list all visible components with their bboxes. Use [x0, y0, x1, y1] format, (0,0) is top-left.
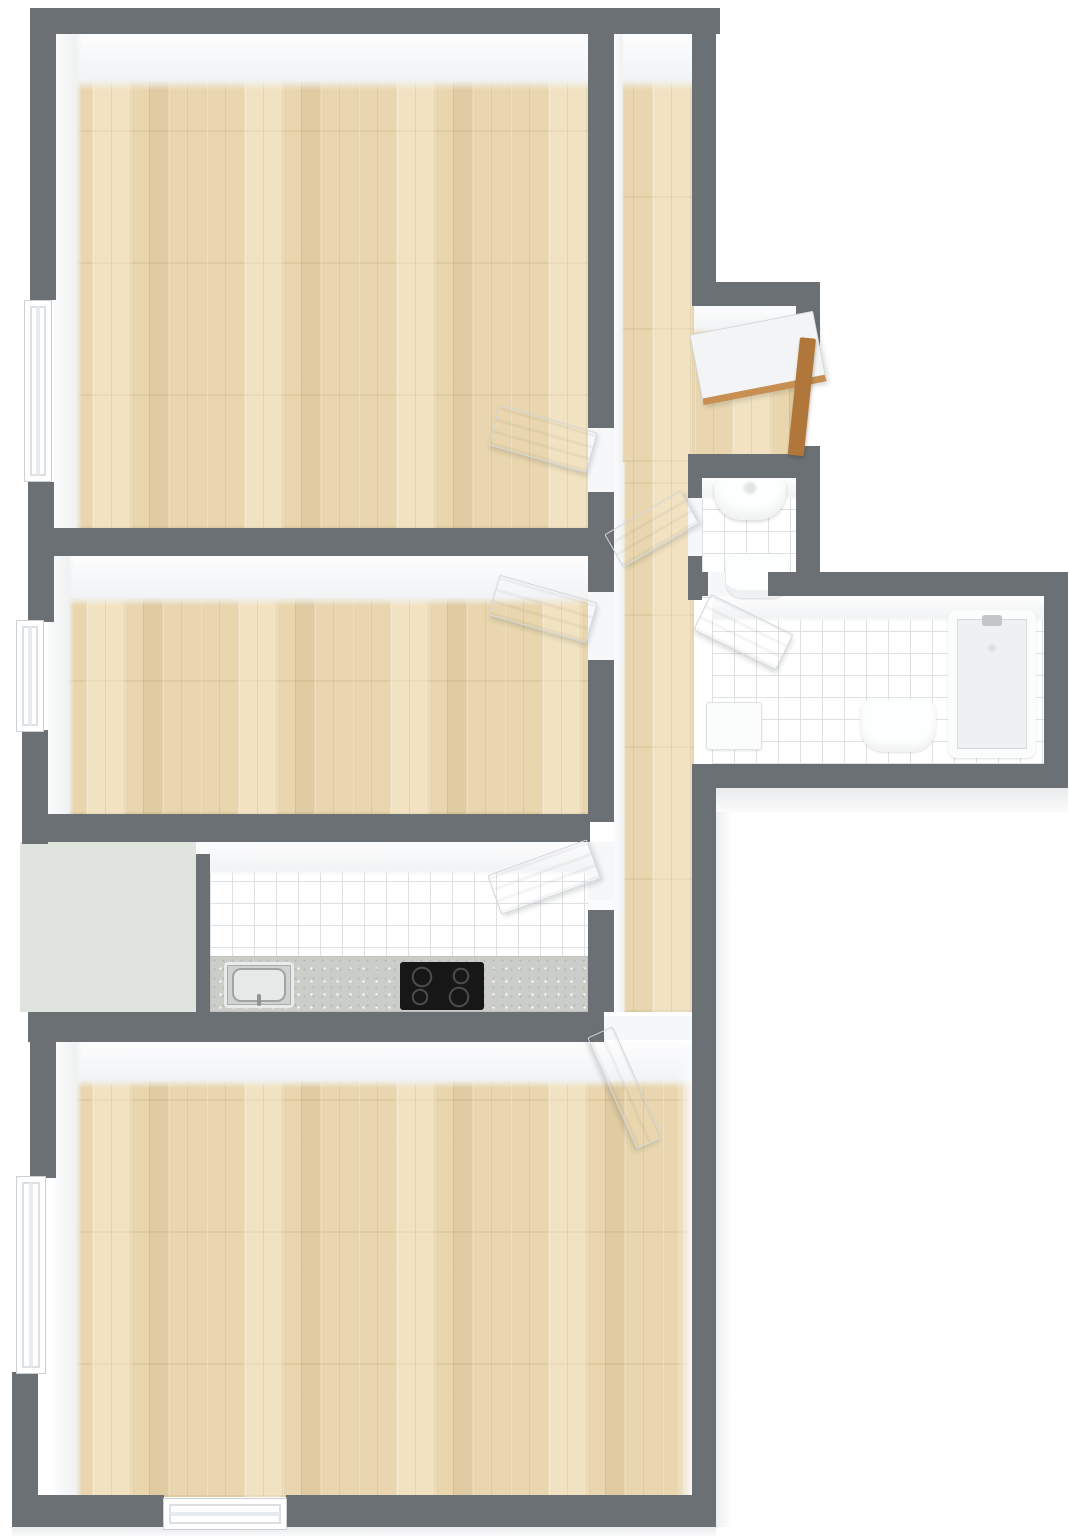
wall-right-lower — [692, 782, 716, 1527]
wall-bottom-right — [286, 1495, 716, 1527]
wall-bath-top-stub — [688, 572, 708, 596]
bathtub — [948, 610, 1036, 758]
hallway-floor — [614, 34, 694, 462]
wall-wc-left-a — [688, 454, 702, 498]
window-bedroom-middle-left — [16, 620, 44, 732]
kitchen-sink — [224, 962, 294, 1008]
washing-machine — [706, 702, 762, 750]
hallway-wallface-top — [614, 34, 694, 90]
wall-bath-top — [768, 572, 1068, 596]
bath-washbasin — [860, 700, 936, 752]
plan-outer-face-bottom — [12, 1527, 716, 1536]
wall-balcony-divider — [196, 842, 210, 1012]
wall-corridor-a — [588, 8, 614, 428]
window-living-left — [16, 1176, 46, 1374]
hallway-wallface-left — [614, 34, 624, 462]
cooktop — [400, 962, 484, 1010]
living-room-floor — [54, 1042, 692, 1497]
wall-bedroom2-kitchen — [24, 814, 590, 842]
divider-wall-cap — [196, 842, 210, 854]
balcony-floor — [20, 842, 196, 1012]
corridor-wall-cap — [588, 900, 614, 910]
floor-plan — [0, 0, 1069, 1536]
window-living-bottom — [163, 1498, 287, 1530]
wall-bottom-left — [12, 1495, 164, 1527]
wall-right-hallway — [692, 8, 716, 288]
living-wallface-left — [54, 1042, 82, 1497]
bedroom-top-wallface-top — [54, 34, 590, 90]
bedroom-top-floor — [54, 34, 590, 528]
bathroom-outer-face-bottom — [716, 788, 1068, 812]
wall-corridor-d — [588, 908, 614, 1012]
wall-left-living-up — [30, 1012, 56, 1178]
wall-living-top — [28, 1012, 604, 1042]
wall-left-upper — [30, 8, 56, 300]
bedroom-top-wallface-left — [54, 34, 82, 528]
living-outer-face-right — [716, 812, 732, 1527]
window-bedroom-top-left — [24, 300, 52, 482]
wall-bath-bottom — [692, 764, 1068, 788]
wall-top — [34, 8, 720, 34]
wc-washbasin — [714, 480, 786, 520]
wall-corridor-c — [588, 660, 614, 822]
living-wallface-right — [676, 1042, 692, 1497]
wall-bath-right — [1044, 572, 1068, 788]
wall-bedrooms-divider — [30, 528, 590, 556]
